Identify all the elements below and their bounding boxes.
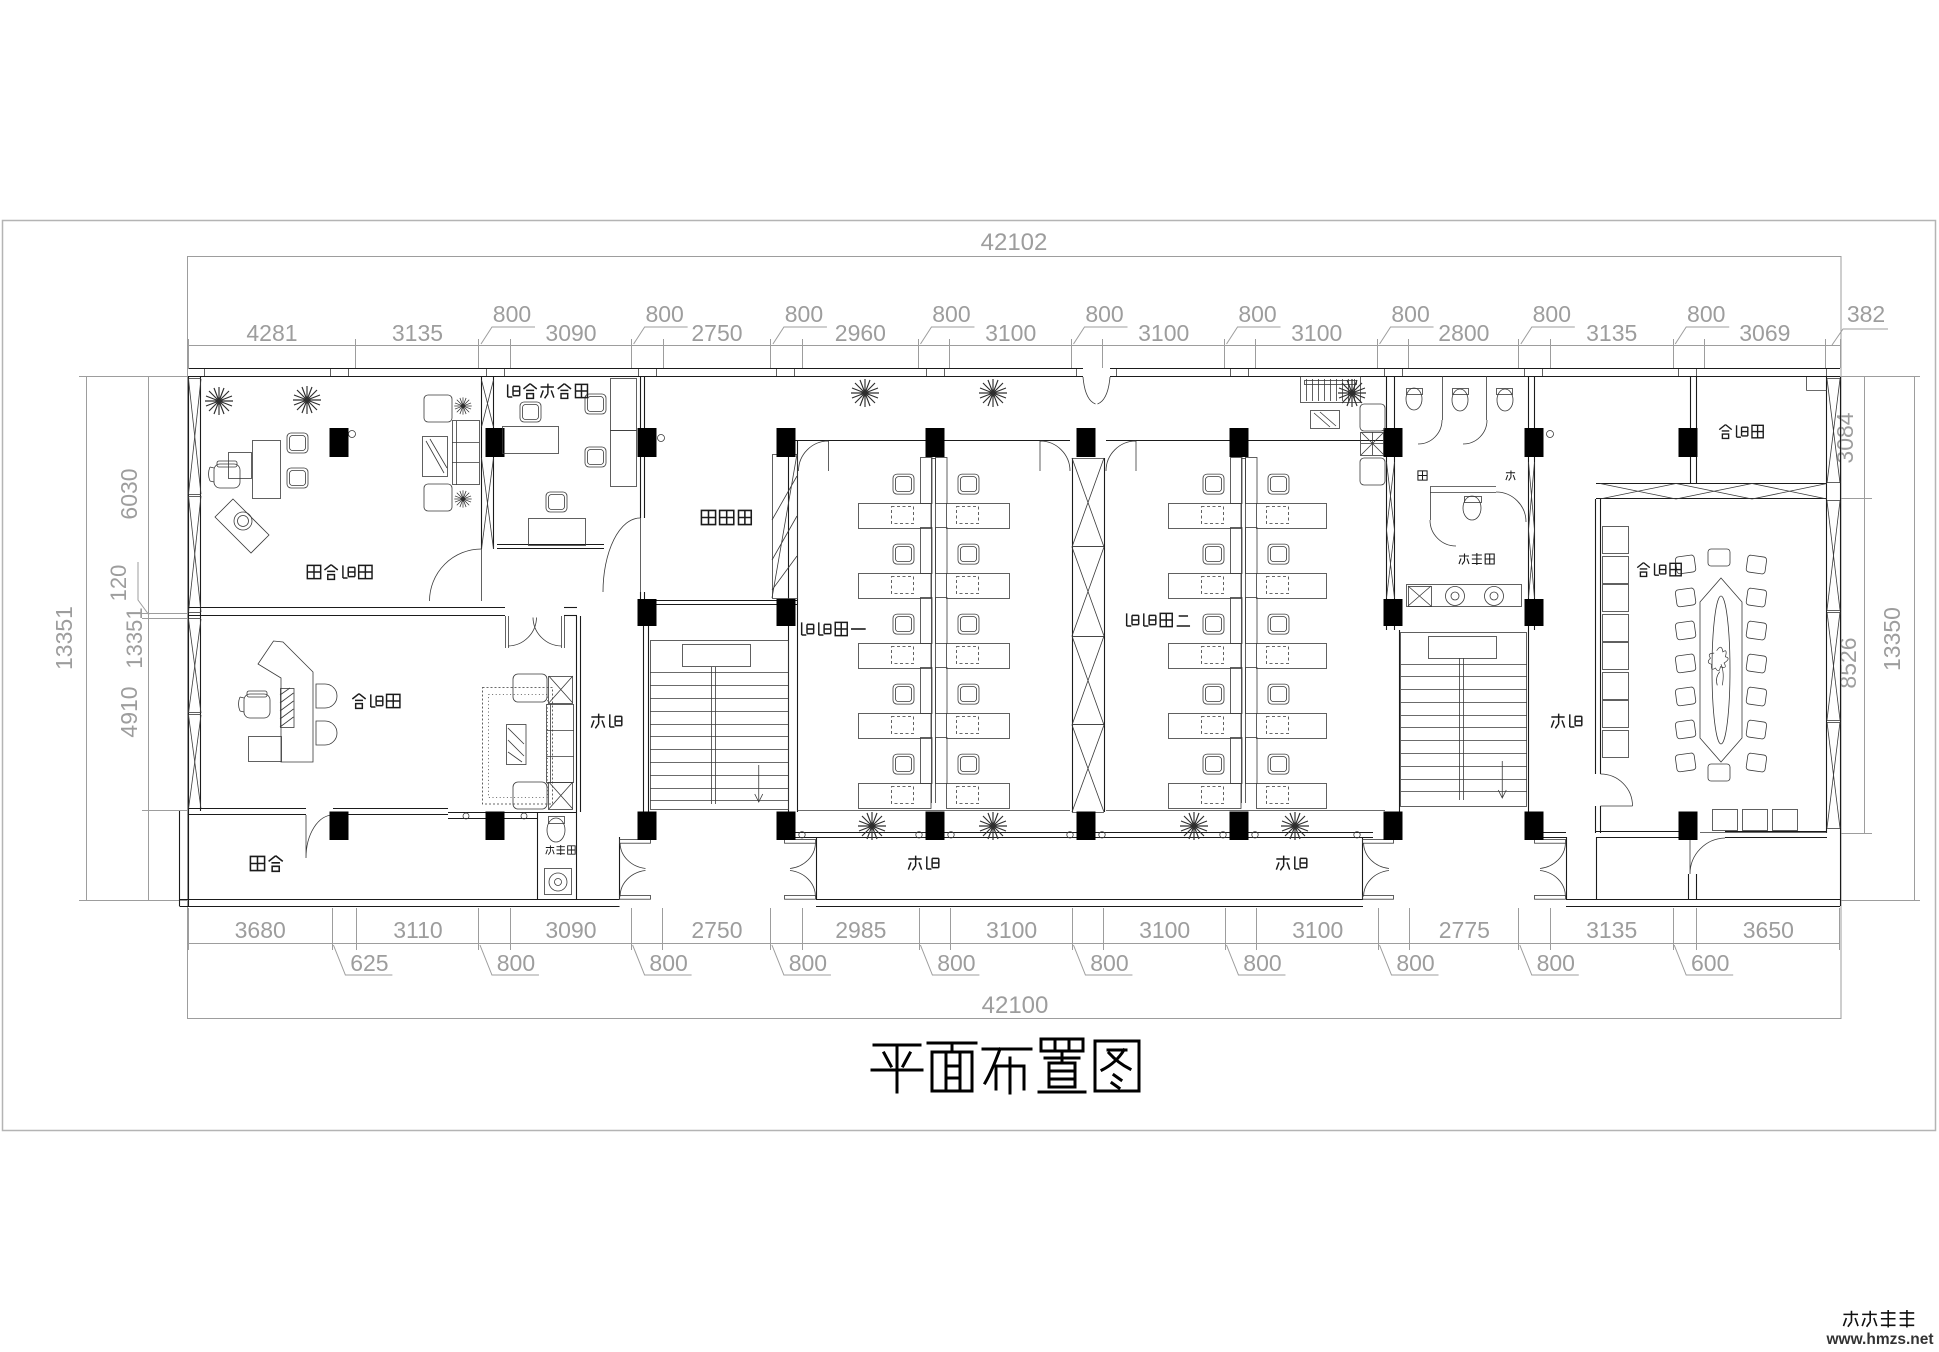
svg-text:3100: 3100 xyxy=(1291,320,1342,346)
svg-text:120: 120 xyxy=(106,565,131,602)
svg-text:800: 800 xyxy=(497,950,535,976)
svg-text:3069: 3069 xyxy=(1739,320,1790,346)
svg-text:800: 800 xyxy=(1533,301,1571,327)
svg-text:600: 600 xyxy=(1691,950,1729,976)
svg-text:3100: 3100 xyxy=(1292,917,1343,943)
svg-text:3100: 3100 xyxy=(1138,320,1189,346)
svg-text:800: 800 xyxy=(1090,950,1128,976)
svg-text:800: 800 xyxy=(493,301,531,327)
svg-text:42100: 42100 xyxy=(982,992,1049,1019)
svg-text:13350: 13350 xyxy=(1879,607,1905,671)
svg-text:625: 625 xyxy=(350,950,388,976)
svg-text:2750: 2750 xyxy=(691,917,742,943)
svg-text:13351: 13351 xyxy=(51,606,77,670)
svg-text:3680: 3680 xyxy=(235,917,286,943)
svg-text:www.hmzs.net: www.hmzs.net xyxy=(1825,1331,1933,1348)
svg-text:3090: 3090 xyxy=(545,917,596,943)
svg-text:800: 800 xyxy=(785,301,823,327)
svg-text:3100: 3100 xyxy=(985,320,1036,346)
svg-text:3650: 3650 xyxy=(1743,917,1794,943)
svg-text:3084: 3084 xyxy=(1832,412,1858,463)
svg-text:3100: 3100 xyxy=(986,917,1037,943)
svg-text:13351: 13351 xyxy=(122,607,147,668)
svg-text:800: 800 xyxy=(645,301,683,327)
svg-text:2960: 2960 xyxy=(835,320,886,346)
svg-text:382: 382 xyxy=(1847,301,1885,327)
svg-text:800: 800 xyxy=(1243,950,1281,976)
svg-text:3135: 3135 xyxy=(392,320,443,346)
svg-text:800: 800 xyxy=(649,950,687,976)
svg-text:800: 800 xyxy=(1391,301,1429,327)
svg-text:800: 800 xyxy=(1085,301,1123,327)
svg-text:2775: 2775 xyxy=(1439,917,1490,943)
svg-text:800: 800 xyxy=(1396,950,1434,976)
svg-text:2985: 2985 xyxy=(835,917,886,943)
svg-text:800: 800 xyxy=(789,950,827,976)
svg-text:2750: 2750 xyxy=(691,320,742,346)
svg-text:6030: 6030 xyxy=(116,468,142,519)
svg-text:3135: 3135 xyxy=(1586,917,1637,943)
svg-text:4910: 4910 xyxy=(116,686,142,737)
svg-text:3135: 3135 xyxy=(1586,320,1637,346)
svg-text:8526: 8526 xyxy=(1835,637,1861,688)
svg-text:3100: 3100 xyxy=(1139,917,1190,943)
svg-text:3110: 3110 xyxy=(393,917,442,943)
svg-text:3090: 3090 xyxy=(545,320,596,346)
svg-text:800: 800 xyxy=(1687,301,1725,327)
svg-text:4281: 4281 xyxy=(246,320,297,346)
svg-text:42102: 42102 xyxy=(981,229,1048,256)
svg-text:2800: 2800 xyxy=(1438,320,1489,346)
svg-text:800: 800 xyxy=(1238,301,1276,327)
svg-text:800: 800 xyxy=(1537,950,1575,976)
svg-text:800: 800 xyxy=(937,950,975,976)
svg-text:800: 800 xyxy=(932,301,970,327)
